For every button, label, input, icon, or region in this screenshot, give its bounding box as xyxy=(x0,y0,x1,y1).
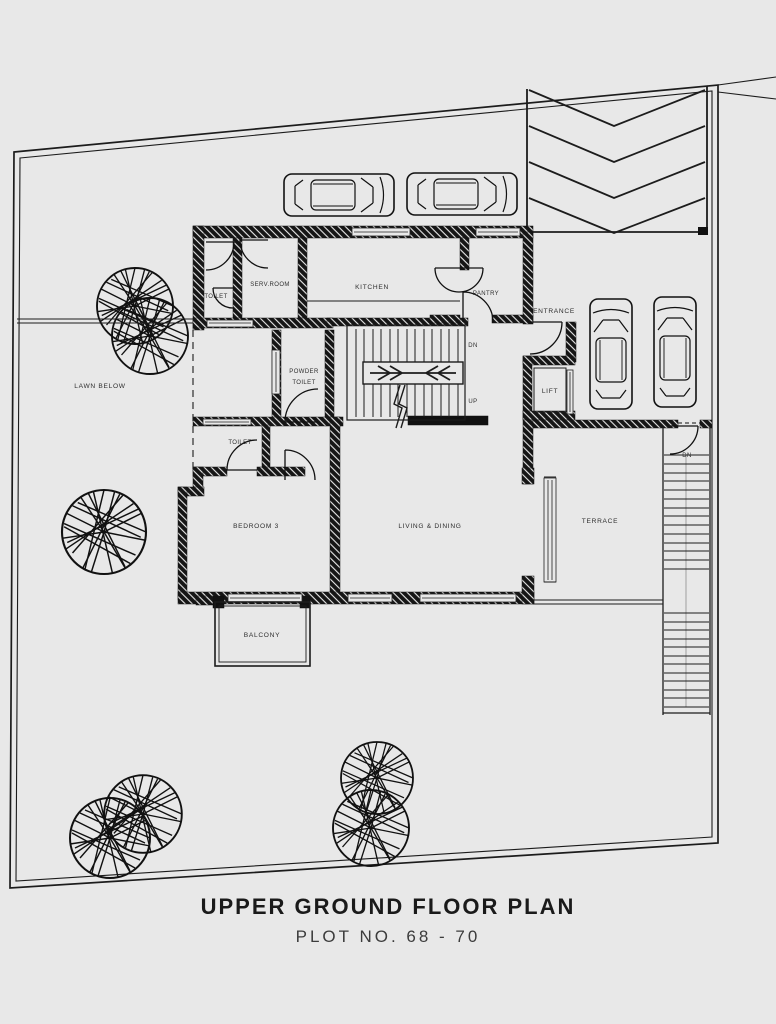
terrace-edge xyxy=(533,600,663,604)
trees xyxy=(62,268,413,878)
label-entrance: ENTRANCE xyxy=(533,308,575,315)
label-stair-up: UP xyxy=(468,399,477,405)
label-stair-dn: DN xyxy=(468,343,477,349)
label-living-dining: LIVING & DINING xyxy=(398,523,461,530)
door-terrace-stair xyxy=(670,426,698,454)
label-kitchen: KITCHEN xyxy=(355,284,389,291)
door-serv-room xyxy=(240,240,268,268)
stair-central xyxy=(347,325,465,428)
label-bedroom3: BEDROOM 3 xyxy=(233,523,279,530)
plot-number: PLOT NO. 68 - 70 xyxy=(0,927,776,947)
plan-title: UPPER GROUND FLOOR PLAN xyxy=(0,894,776,920)
road-edge-lines xyxy=(718,77,776,99)
stair-break-line xyxy=(394,385,407,428)
label-terrace-dn: DN xyxy=(682,453,691,459)
label-powder-line1: POWDER xyxy=(289,369,319,375)
stair-terrace xyxy=(663,427,710,715)
tree-icon xyxy=(333,790,409,866)
car-icon xyxy=(284,174,394,216)
wall-stub xyxy=(698,227,708,235)
ramp-chevrons xyxy=(527,86,708,235)
car-icon xyxy=(407,173,517,215)
label-toilet-mid: TOILET xyxy=(228,440,251,446)
label-terrace: TERRACE xyxy=(582,518,618,525)
door-toilet-top xyxy=(206,242,234,270)
car-icon xyxy=(654,297,696,407)
room-labels: TOILET SERV.ROOM KITCHEN PANTRY ENTRANCE… xyxy=(74,282,691,639)
label-balcony: BALCONY xyxy=(244,632,280,639)
label-toilet-top: TOILET xyxy=(204,294,227,300)
label-serv-room: SERV.ROOM xyxy=(250,282,290,288)
tree-icon xyxy=(104,775,182,853)
label-lawn-below: LAWN BELOW xyxy=(74,383,126,390)
label-powder-line2: TOILET xyxy=(292,380,315,386)
floor-plan-drawing: TOILET SERV.ROOM KITCHEN PANTRY ENTRANCE… xyxy=(0,0,776,1024)
title-block: UPPER GROUND FLOOR PLAN PLOT NO. 68 - 70 xyxy=(0,894,776,947)
label-lift: LIFT xyxy=(542,388,558,395)
car-icon xyxy=(590,299,632,409)
label-pantry: PANTRY xyxy=(473,291,499,297)
plot-boundary xyxy=(10,77,776,888)
tree-icon xyxy=(62,490,146,574)
door-entrance xyxy=(530,322,562,354)
floor-plan-sheet: TOILET SERV.ROOM KITCHEN PANTRY ENTRANCE… xyxy=(0,0,776,1024)
door-kitchen-pantry xyxy=(435,268,483,292)
